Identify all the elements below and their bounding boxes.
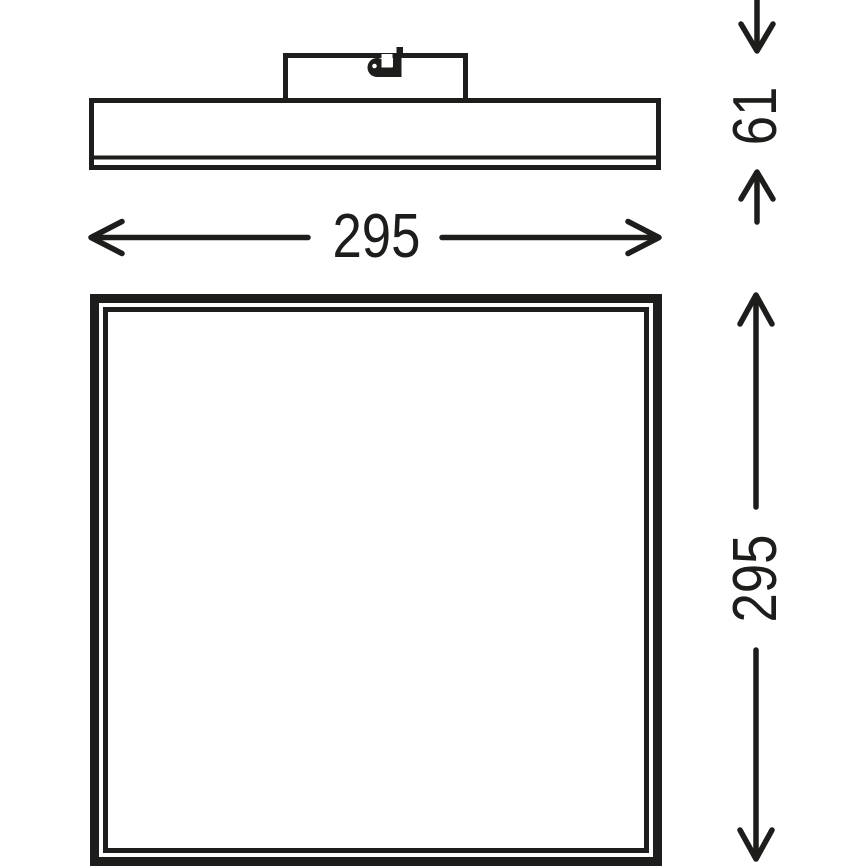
cable-clamp-icon bbox=[368, 46, 404, 77]
technical-drawing-page: 295 61 295 bbox=[0, 0, 868, 868]
panel-front-outer-frame bbox=[95, 299, 658, 862]
depth-dimension-label: 61 bbox=[725, 82, 787, 150]
height-dimension-label: 295 bbox=[725, 538, 787, 623]
front-view bbox=[95, 299, 658, 862]
width-dimension-label: 295 bbox=[333, 206, 418, 268]
side-view bbox=[92, 46, 659, 168]
